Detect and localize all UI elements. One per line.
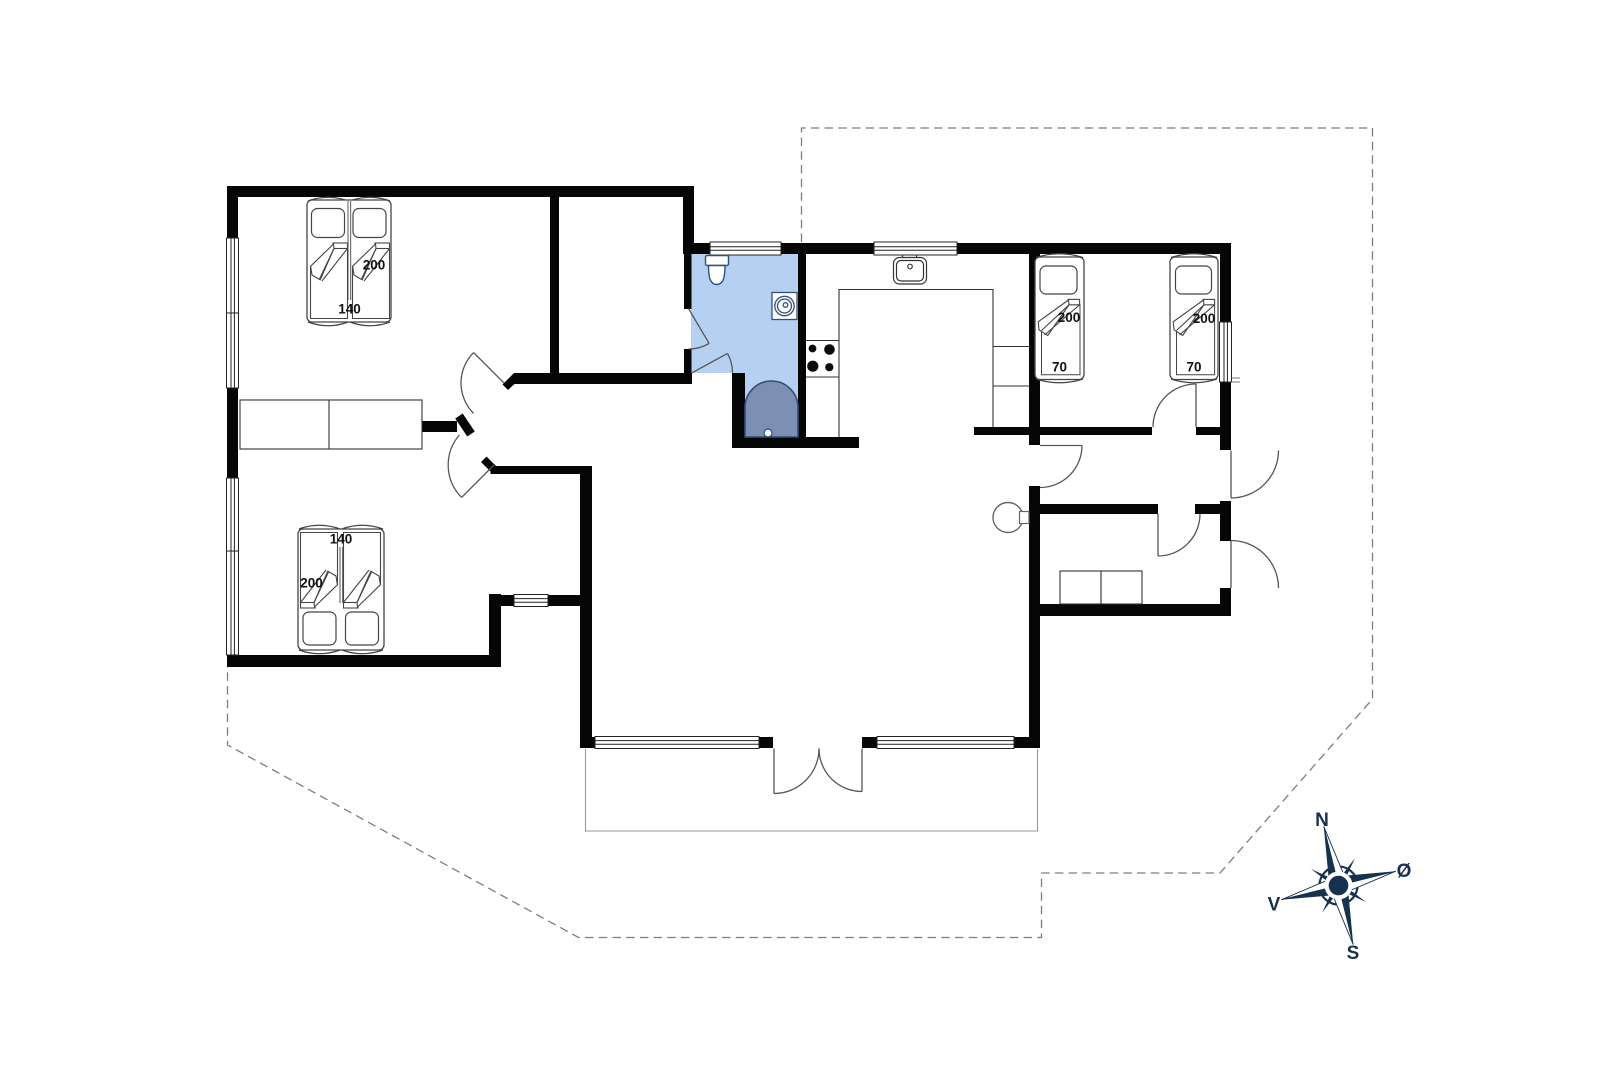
svg-text:N: N (1315, 810, 1329, 831)
svg-text:V: V (1268, 895, 1281, 916)
svg-text:70: 70 (1052, 360, 1067, 375)
svg-text:200: 200 (300, 576, 323, 591)
svg-text:S: S (1347, 943, 1360, 964)
svg-text:200: 200 (363, 258, 386, 273)
svg-text:70: 70 (1186, 360, 1201, 375)
svg-text:140: 140 (338, 302, 361, 317)
svg-text:200: 200 (1193, 311, 1216, 326)
svg-text:Ø: Ø (1397, 861, 1412, 882)
svg-text:140: 140 (330, 532, 353, 547)
svg-text:200: 200 (1058, 310, 1081, 325)
